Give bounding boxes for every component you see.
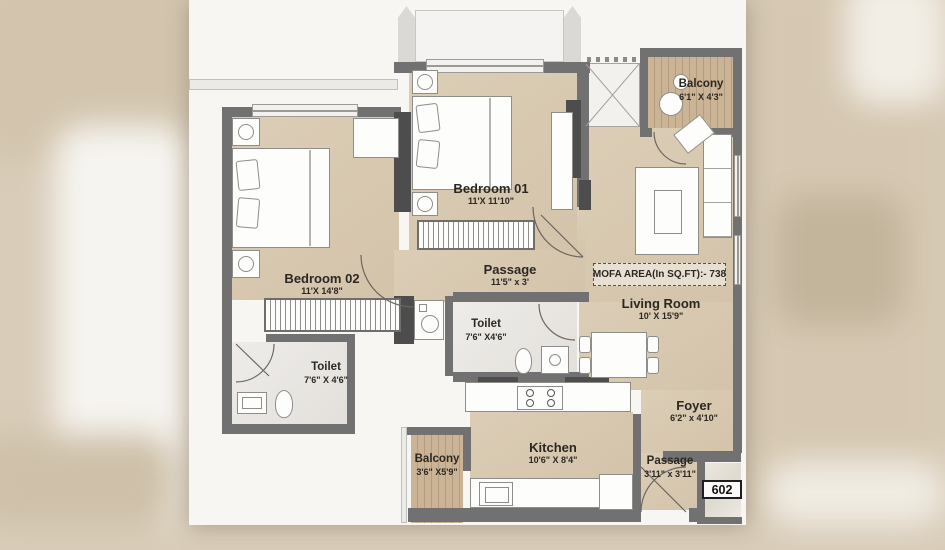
backdrop-blob — [845, 0, 945, 105]
room-label-bedroom-02: Bedroom 02 11'X 14'8" — [284, 271, 359, 297]
room-name: Toilet — [304, 361, 348, 375]
room-dims: 11'5" x 3' — [484, 277, 537, 288]
room-dims: 11'X 11'10" — [453, 196, 528, 207]
room-dims: 3'6" X5'9" — [415, 467, 460, 478]
room-dims: 11'X 14'8" — [284, 286, 359, 297]
room-label-passage-mid: Passage 11'5" x 3' — [484, 262, 537, 288]
room-label-foyer: Foyer 6'2" x 4'10" — [670, 398, 718, 424]
room-dims: 7'6" X 4'6" — [304, 375, 348, 386]
room-name: Bedroom 01 — [453, 181, 528, 196]
room-name: Living Room — [622, 296, 701, 311]
backdrop-blob — [775, 195, 905, 325]
room-name: Foyer — [670, 398, 718, 413]
backdrop-blob — [0, 435, 175, 525]
room-dims: 3'11" x 3'11" — [644, 469, 696, 480]
room-name: Balcony — [679, 78, 724, 92]
room-dims: 6'1" X 4'3" — [679, 92, 724, 103]
room-name: Balcony — [415, 453, 460, 467]
room-dims: 6'2" x 4'10" — [670, 413, 718, 424]
room-label-balcony-top: Balcony 6'1" X 4'3" — [679, 78, 724, 102]
unit-number-badge: 602 — [702, 480, 742, 499]
backdrop-blob — [765, 460, 945, 525]
room-dims: 7'6" X4'6" — [465, 332, 506, 343]
room-dims: 10' X 15'9" — [622, 311, 701, 322]
room-label-living-room: Living Room 10' X 15'9" — [622, 296, 701, 322]
room-name: Passage — [644, 455, 696, 469]
mofa-area-label: MOFA AREA(In SQ.FT):- 738 — [593, 263, 726, 286]
room-name: Kitchen — [529, 440, 578, 455]
room-dims: 10'6" X 8'4" — [529, 455, 578, 466]
room-label-toilet-left: Toilet 7'6" X 4'6" — [304, 361, 348, 385]
room-label-bedroom-01: Bedroom 01 11'X 11'10" — [453, 181, 528, 207]
room-name: Toilet — [465, 318, 506, 332]
room-label-balcony-bottom: Balcony 3'6" X5'9" — [415, 453, 460, 477]
room-label-kitchen: Kitchen 10'6" X 8'4" — [529, 440, 578, 466]
room-name: Bedroom 02 — [284, 271, 359, 286]
room-label-toilet-mid: Toilet 7'6" X4'6" — [465, 318, 506, 342]
room-name: Passage — [484, 262, 537, 277]
floor-plan: Bedroom 01 11'X 11'10" Bedroom 02 11'X 1… — [189, 0, 746, 525]
room-label-passage-entry: Passage 3'11" x 3'11" — [644, 455, 696, 479]
